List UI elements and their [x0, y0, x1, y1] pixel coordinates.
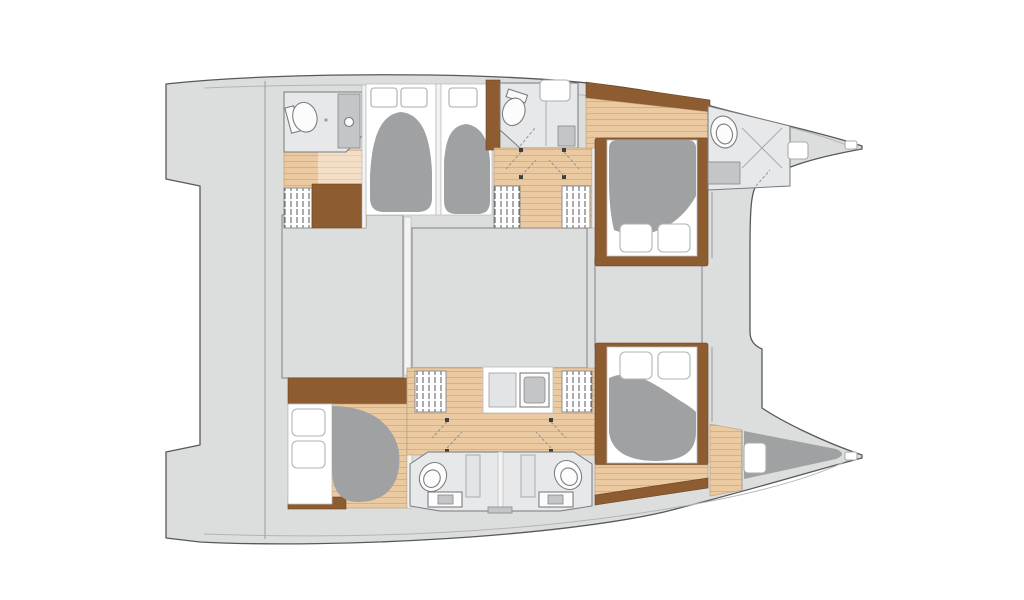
pillow: [620, 352, 652, 379]
upper-aft-cabin-2-bed: [441, 84, 492, 215]
wall-bed1-bed2: [436, 84, 441, 215]
pillow: [292, 409, 325, 436]
saloon-block-forward: [595, 258, 702, 347]
lower-wardrobe-right: [562, 371, 592, 412]
lower-aft-cabin: [288, 378, 407, 509]
door-hinge: [519, 148, 523, 152]
vanity-panel: [489, 373, 516, 407]
upper-aft-dresser: [312, 184, 366, 228]
forepeak-floor: [710, 424, 742, 496]
bed2-hatch: [449, 88, 477, 107]
bathroom-door-sill: [488, 507, 512, 513]
shower-drain-icon: [324, 118, 327, 121]
pillow: [620, 224, 652, 252]
bow-cleat-icon: [845, 141, 857, 149]
lower-twin-bathrooms: [410, 452, 592, 513]
bed1-hatch-right: [401, 88, 427, 107]
floorplan-drawing: [0, 0, 1024, 600]
mid-bathroom-wall-strip: [486, 80, 500, 150]
door-hinge: [562, 148, 566, 152]
deck-hatch: [540, 80, 570, 101]
lower-forward-cabin: [595, 343, 708, 505]
upper-aft-sink-bowl: [345, 118, 354, 127]
upper-forward-cabin: [586, 82, 710, 266]
pillow: [658, 352, 690, 379]
upper-aft-bathroom: [284, 92, 362, 152]
sink-left-bowl: [438, 495, 453, 504]
catamaran-floorplan-canvas: [0, 0, 1024, 600]
lower-corridor: [407, 367, 595, 455]
shower-seat-right: [521, 455, 535, 497]
bow-sink-cabinet: [708, 162, 740, 184]
saloon-block-divider-wall: [404, 217, 411, 375]
wall-corridor-fwdcabin: [592, 148, 595, 228]
saloon-block-aft: [282, 215, 403, 378]
upper-mid-sink: [558, 126, 575, 146]
upper-corridor: [494, 148, 592, 228]
upper-aft-wardrobe: [284, 188, 312, 228]
bathroom-partition: [498, 452, 503, 510]
lower-aft-headboard-band: [288, 378, 407, 404]
lower-wardrobe-left: [415, 371, 446, 412]
vanity-sink-bowl: [524, 377, 545, 403]
bed1-hatch-left: [371, 88, 397, 107]
bed2-duvet: [444, 124, 490, 214]
galley-vanity-unit: [483, 367, 553, 413]
bow-cleat-icon: [845, 452, 857, 460]
sink-right-bowl: [548, 495, 563, 504]
pillow: [292, 441, 325, 468]
upper-bow-bathroom: [708, 106, 790, 190]
door-hinge: [445, 418, 449, 422]
wall-aftbath-bed1: [362, 85, 366, 228]
upper-aft-cabin-1-bed: [366, 84, 436, 215]
upper-mid-wardrobe-left: [494, 186, 520, 228]
shower-seat-left: [466, 455, 480, 497]
pillow: [658, 224, 690, 252]
door-hinge: [549, 418, 553, 422]
upper-aft-cabin: [284, 150, 366, 228]
saloon-block-main: [412, 228, 587, 368]
forepeak-hatch: [744, 443, 766, 473]
upper-mid-wardrobe-right: [562, 186, 590, 228]
deck-hatch: [788, 142, 808, 159]
